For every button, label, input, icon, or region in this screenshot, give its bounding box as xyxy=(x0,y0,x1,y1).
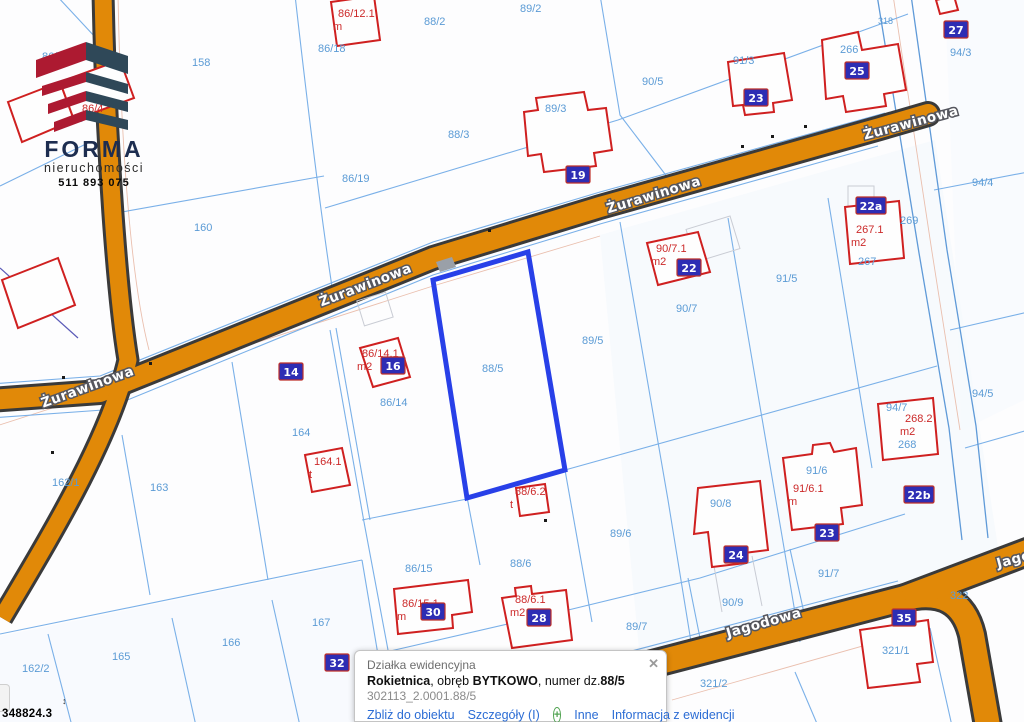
house-number: 28 xyxy=(531,612,546,625)
house-number-plate: 23 xyxy=(815,524,839,541)
logo-building-icon xyxy=(34,36,130,136)
house-number: 14 xyxy=(283,366,299,379)
parcel-label: 89/5 xyxy=(582,335,603,347)
house-number-plate: 14 xyxy=(279,363,303,380)
parcel-label: 89/6 xyxy=(610,528,631,540)
building-label: m2 xyxy=(510,607,525,619)
house-number-plate: 25 xyxy=(845,62,869,79)
building-label: 86/12.1 xyxy=(338,8,375,20)
parcel-label: 91/6 xyxy=(806,465,827,477)
house-number: 35 xyxy=(896,612,911,625)
building-label: m xyxy=(788,496,797,508)
house-number-plate: 24 xyxy=(724,546,748,563)
house-number: 16 xyxy=(385,360,401,373)
house-number: 25 xyxy=(849,65,864,78)
house-number: 22a xyxy=(860,200,883,213)
parcel-label: 158 xyxy=(192,57,210,69)
popup-municipality: Rokietnica xyxy=(367,674,430,688)
updown-icon: ↕ xyxy=(62,696,67,706)
building-label: t xyxy=(510,499,513,511)
parcel-label: 91/5 xyxy=(776,273,797,285)
popup-links: Zbliż do obiektu Szczegóły (I) + Inne In… xyxy=(367,707,656,722)
parcel-label: 162/2 xyxy=(22,663,50,675)
parcel-label: 90/7 xyxy=(676,303,697,315)
parcel-label: 86/15 xyxy=(405,563,433,575)
house-number-plate: 22 xyxy=(677,259,701,276)
add-plus-icon[interactable]: + xyxy=(553,707,561,722)
details-link[interactable]: Szczegóły (I) xyxy=(468,708,540,722)
house-number-plate: 19 xyxy=(566,166,590,183)
coordinate-readout: ↕ 348824.3 xyxy=(0,708,52,720)
parcel-label: 267 xyxy=(858,256,876,268)
popup-district: BYTKOWO xyxy=(473,674,538,688)
house-number: 23 xyxy=(748,92,763,105)
parcel-label: 94/3 xyxy=(950,47,971,59)
logo-phone: 511 893 075 xyxy=(34,177,154,189)
parcel-label: 266 xyxy=(840,44,858,56)
parcel-label: 88/3 xyxy=(448,129,469,141)
building xyxy=(524,92,612,172)
zoom-to-object-link[interactable]: Zbliż do obiektu xyxy=(367,708,455,722)
house-number-plate: 22a xyxy=(856,197,886,214)
building xyxy=(2,258,75,328)
parcel-label: 89/3 xyxy=(545,103,566,115)
house-number: 30 xyxy=(425,606,441,619)
close-icon[interactable]: ✕ xyxy=(648,656,659,672)
parcel-label: 86/14 xyxy=(380,397,408,409)
house-number-plate: 30 xyxy=(421,603,445,620)
parcel-label: 321/2 xyxy=(700,678,728,690)
house-number: 27 xyxy=(948,24,963,37)
house-number: 32 xyxy=(329,657,344,670)
parcel-label: 88/2 xyxy=(424,16,445,28)
popup-parcel-number: 88/5 xyxy=(600,674,624,688)
parcel-label: 90/5 xyxy=(642,76,663,88)
house-number-plate: 22b xyxy=(904,486,934,503)
highlighted-parcel-88-5[interactable] xyxy=(433,252,565,498)
building-label: m xyxy=(397,611,406,623)
parcel-label: 166 xyxy=(222,637,240,649)
house-number-plate: 16 xyxy=(381,357,405,374)
building-label: m2 xyxy=(851,237,866,249)
agency-logo: FORMA nieruchomości 511 893 075 xyxy=(34,36,154,189)
parcel-label: 90/8 xyxy=(710,498,731,510)
house-number: 24 xyxy=(728,549,744,562)
building-label: m2 xyxy=(900,426,915,438)
building-label: 91/6.1 xyxy=(793,483,824,495)
parcel-label: 90/9 xyxy=(722,597,743,609)
building-label: t xyxy=(309,469,312,481)
house-number-plate: 23 xyxy=(744,89,768,106)
registry-info-link[interactable]: Informacja z ewidencji xyxy=(612,708,735,722)
map-viewport: 86/4 9 158 86/18 88/2 89/2 90/5 91/3 266… xyxy=(0,0,1024,722)
popup-sep2: , numer dz. xyxy=(538,674,601,688)
parcel-label: 163 xyxy=(150,482,168,494)
house-number: 19 xyxy=(570,169,585,182)
parcel-info-popup: ✕ Działka ewidencyjna Rokietnica, obręb … xyxy=(354,650,667,722)
parcel-tint xyxy=(0,562,392,722)
building-label: m xyxy=(333,21,342,33)
building-label: 88/6.2 xyxy=(515,486,546,498)
parcel-label: 318 xyxy=(878,16,893,26)
parcel-label: 91/3 xyxy=(733,55,754,67)
building-label: m2 xyxy=(357,361,372,373)
house-number: 23 xyxy=(819,527,834,540)
logo-subtitle: nieruchomości xyxy=(34,161,154,177)
parcel-label: 269 xyxy=(900,215,918,227)
other-link[interactable]: Inne xyxy=(574,708,598,722)
parcel-label: 94/5 xyxy=(972,388,993,400)
house-number-plate: 28 xyxy=(527,609,551,626)
popup-parcel-line: Rokietnica, obręb BYTKOWO, numer dz.88/5 xyxy=(367,673,656,689)
logo-brand-text: FORMA xyxy=(34,138,154,161)
parcel-label: 321/1 xyxy=(882,645,910,657)
parcel-label: 86/19 xyxy=(342,173,370,185)
building-label: 164.1 xyxy=(314,456,342,468)
parcel-label-88-5: 88/5 xyxy=(482,363,503,375)
parcel-label: 160 xyxy=(194,222,212,234)
parcel-label: 88/6 xyxy=(510,558,531,570)
house-number-plate: 32 xyxy=(325,654,349,671)
building-label: 267.1 xyxy=(856,224,884,236)
house-number: 22b xyxy=(907,489,930,502)
parcel-label: 322 xyxy=(950,590,968,602)
popup-full-id: 302113_2.0001.88/5 xyxy=(367,689,656,704)
building-label: 88/6.1 xyxy=(515,594,546,606)
popup-sep1: , obręb xyxy=(430,674,472,688)
parcel-label: 167 xyxy=(312,617,330,629)
parcel-label: 165 xyxy=(112,651,130,663)
house-number-plate: 27 xyxy=(944,21,968,38)
building-label: 268.2 xyxy=(905,413,933,425)
popup-type-label: Działka ewidencyjna xyxy=(367,658,656,673)
building-label: 90/7.1 xyxy=(656,243,687,255)
parcel-label: 268 xyxy=(898,439,916,451)
house-number-plate: 35 xyxy=(892,609,916,626)
parcel-label: 86/18 xyxy=(318,43,346,55)
building-label: m2 xyxy=(651,256,666,268)
parcel-label: 162/1 xyxy=(52,477,80,489)
parcel-label: 89/7 xyxy=(626,621,647,633)
easting-value: 348824.3 xyxy=(2,708,52,720)
parcel-label: 164 xyxy=(292,427,310,439)
parcel-label: 94/4 xyxy=(972,177,993,189)
house-number: 22 xyxy=(681,262,696,275)
parcel-label: 91/7 xyxy=(818,568,839,580)
parcel-label: 89/2 xyxy=(520,3,541,15)
